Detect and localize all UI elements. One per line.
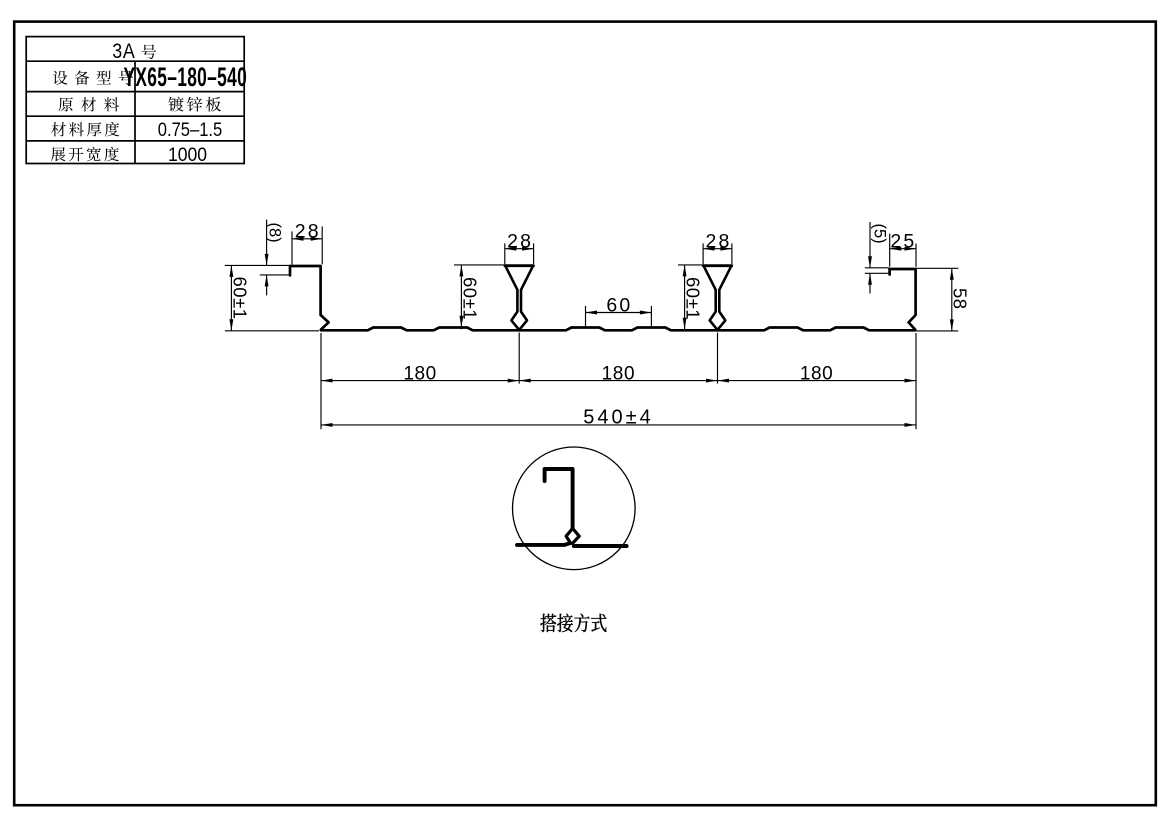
svg-text:1000: 1000 [168, 143, 207, 165]
svg-text:(5): (5) [871, 224, 889, 244]
svg-text:60: 60 [606, 294, 632, 316]
svg-text:0.75–1.5: 0.75–1.5 [158, 119, 222, 141]
svg-text:60±1: 60±1 [460, 277, 481, 320]
svg-text:25: 25 [890, 231, 916, 253]
svg-text:60±1: 60±1 [230, 277, 251, 320]
svg-text:28: 28 [705, 231, 731, 253]
svg-text:28: 28 [295, 221, 321, 243]
svg-text:540±4: 540±4 [583, 407, 653, 429]
svg-text:180: 180 [602, 363, 636, 384]
svg-text:60±1: 60±1 [683, 277, 704, 320]
svg-text:180: 180 [403, 363, 437, 384]
svg-text:28: 28 [507, 231, 533, 253]
svg-text:3A: 3A [112, 40, 135, 64]
svg-text:58: 58 [950, 288, 971, 310]
svg-text:(8): (8) [265, 223, 283, 243]
svg-text:YX65–180–540: YX65–180–540 [124, 62, 248, 92]
svg-text:180: 180 [800, 363, 834, 384]
